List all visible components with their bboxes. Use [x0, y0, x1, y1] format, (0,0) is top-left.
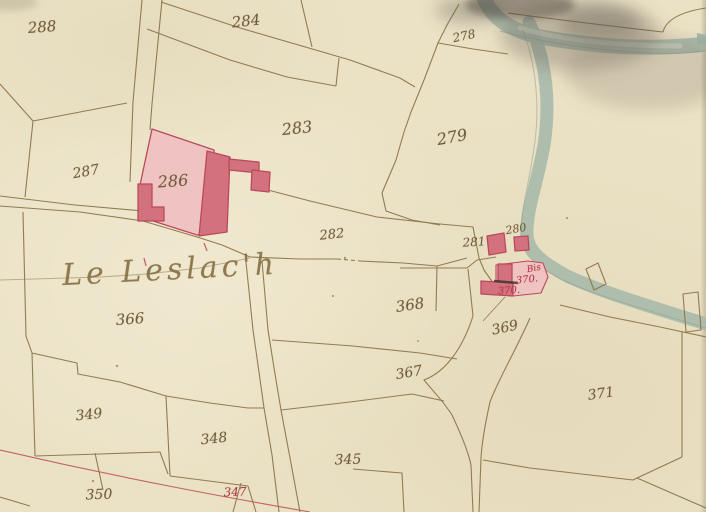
red-tick-2	[204, 243, 207, 251]
boundary-284-endcap	[336, 58, 339, 86]
road-dashed-segment	[337, 259, 361, 261]
boundary-284-upper	[161, 2, 415, 87]
road-bottom-edge-east	[250, 257, 467, 266]
ink-specks	[92, 217, 568, 482]
road-top-edge-west	[0, 196, 143, 211]
cadastral-map-sheet: 288284278283279287286282281280Bis370.370…	[0, 0, 706, 512]
lane-north-east-edge	[150, 0, 162, 130]
buildings	[138, 129, 548, 296]
boundary-347	[233, 483, 256, 512]
boundary-279-west	[382, 4, 459, 225]
boundary-368-369	[436, 266, 437, 311]
building-286-annex	[251, 170, 270, 192]
boundary-366-south	[32, 353, 264, 408]
boundary-se-corner	[637, 478, 706, 508]
lane-se-west-edge	[424, 316, 473, 512]
building-286	[138, 129, 270, 236]
road-south-west-edge	[246, 262, 279, 512]
boundary-345-east	[353, 469, 404, 512]
boundary-287-top	[33, 103, 127, 121]
boundary-288	[0, 84, 33, 121]
boundary-367-345	[281, 394, 444, 410]
boundary-under-placename	[0, 258, 250, 280]
red-section-line	[0, 450, 310, 512]
road-top-edge-east	[268, 190, 479, 258]
building-280	[514, 236, 529, 251]
label-370-leader	[483, 297, 505, 321]
building-370bis	[481, 261, 548, 296]
boundary-284-lower	[147, 29, 336, 86]
boundary-371-south	[483, 457, 682, 480]
boundary-348-south	[170, 476, 248, 486]
lane-se-east-edge	[479, 318, 530, 512]
boundary-349-348	[166, 396, 170, 476]
building-281	[487, 233, 506, 255]
boundary-368-367	[272, 340, 457, 359]
red-tick-1	[144, 258, 146, 266]
road-south-east-edge	[262, 261, 300, 512]
boundary-left-vertical	[23, 212, 32, 353]
boundary-350	[0, 453, 103, 506]
boundary-349-west	[32, 353, 35, 456]
boundary-278-south	[438, 43, 508, 54]
boundary-287-left	[25, 121, 33, 197]
boundary-349-south	[35, 452, 168, 474]
boundary-top-center	[301, 0, 312, 47]
lane-north-west-edge	[130, 0, 142, 182]
boundary-369-west	[468, 269, 473, 316]
ink-stain	[0, 0, 706, 110]
map-linework-canvas	[0, 0, 706, 512]
